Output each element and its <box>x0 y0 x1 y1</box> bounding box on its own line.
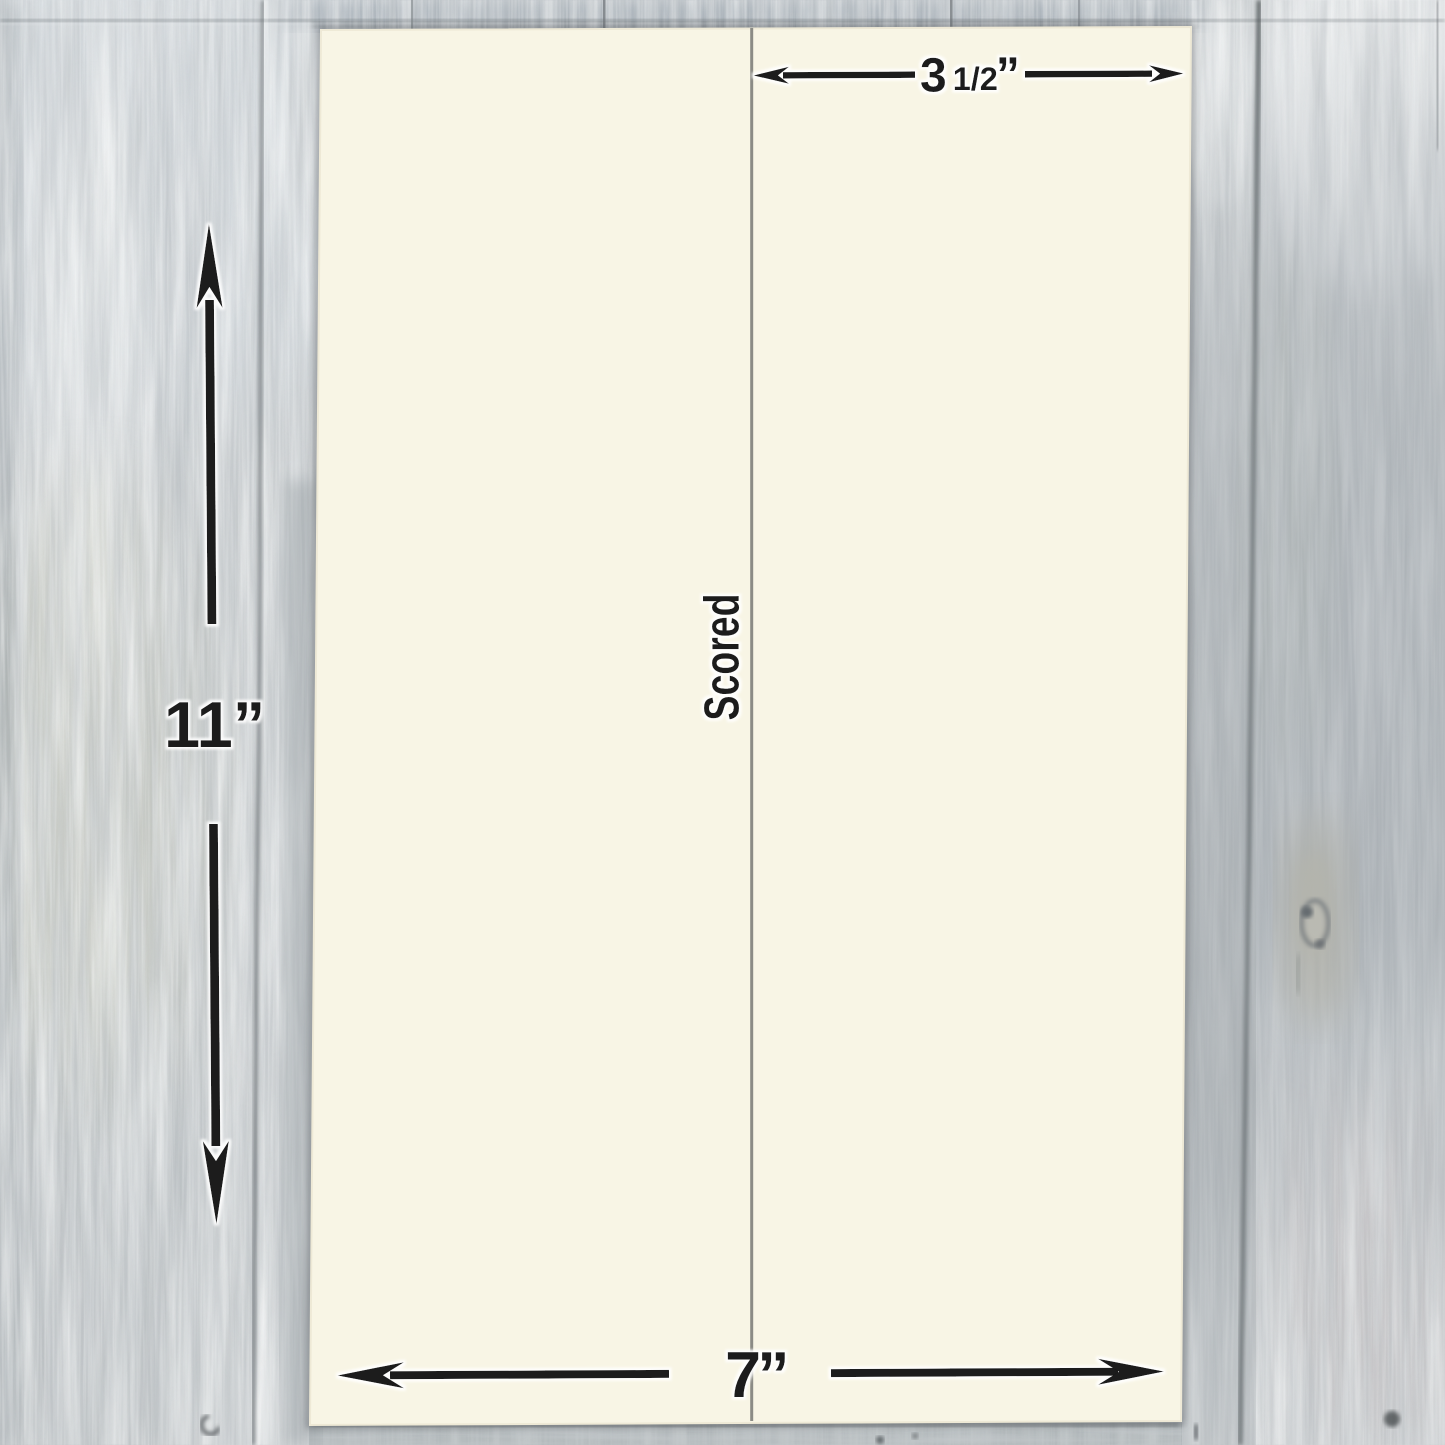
svg-text:Scored: Scored <box>696 594 750 721</box>
svg-text:7”: 7” <box>725 1338 790 1411</box>
svg-text:11”: 11” <box>164 688 265 761</box>
